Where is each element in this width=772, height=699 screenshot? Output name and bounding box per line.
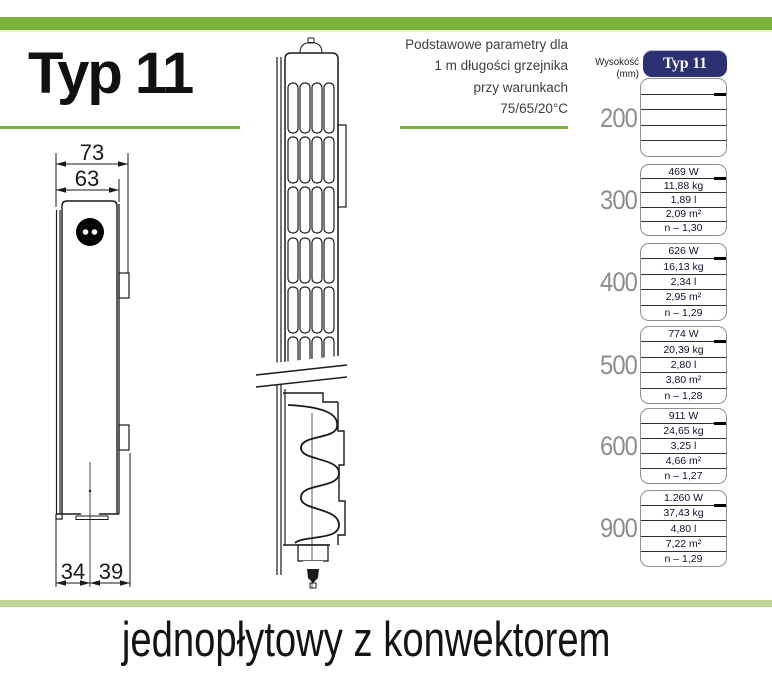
table-cell: 911 W <box>641 409 726 424</box>
table-block-900: 1.260 W 37,43 kg 4,80 l 7,22 m² n – 1,29 <box>640 490 727 567</box>
table-cell <box>641 126 726 142</box>
table-cell: 2,95 m² <box>641 290 726 305</box>
table-cell: 2,09 m² <box>641 208 726 222</box>
table-cell <box>641 95 726 111</box>
table-cell: n – 1,30 <box>641 222 726 235</box>
table-cell: n – 1,27 <box>641 469 726 483</box>
height-label-400: 400 <box>574 266 637 298</box>
table-height-header: Wysokość (mm) <box>578 56 639 80</box>
table-cell: n – 1,28 <box>641 389 726 403</box>
dim-top-outer: 73 <box>80 140 104 165</box>
table-cell: n – 1,29 <box>641 552 726 566</box>
footer-subtitle-text: jednopłytowy z konwektorem <box>122 612 611 668</box>
note-line-3: przy warunkach <box>368 77 568 98</box>
table-cell: 2,34 l <box>641 275 726 290</box>
table-cell: 1,89 l <box>641 193 726 207</box>
table-cell: 20,39 kg <box>641 342 726 357</box>
table-block-400: 626 W 16,13 kg 2,34 l 2,95 m² n – 1,29 <box>640 243 727 321</box>
height-label-500: 500 <box>574 349 637 381</box>
table-cell <box>641 79 726 95</box>
table-cell: 3,80 m² <box>641 373 726 388</box>
note-line-2: 1 m długości grzejnika <box>368 55 568 76</box>
table-block-500: 774 W 20,39 kg 2,80 l 3,80 m² n – 1,28 <box>640 326 727 404</box>
table-cell: 24,65 kg <box>641 424 726 439</box>
table-cell: 4,66 m² <box>641 454 726 469</box>
note-line-4: 75/65/20°C <box>368 98 568 119</box>
page-title: Typ 11 <box>28 40 192 107</box>
table-cell: 37,43 kg <box>641 506 726 521</box>
table-cell: 626 W <box>641 244 726 259</box>
table-cell <box>641 141 726 156</box>
table-cell: 469 W <box>641 165 726 179</box>
table-cell: 4,80 l <box>641 521 726 536</box>
footer-subtitle: jednopłytowy z konwektorem <box>0 612 772 668</box>
table-cell: 2,80 l <box>641 358 726 373</box>
table-cell: 11,88 kg <box>641 179 726 193</box>
note-underline <box>400 126 568 129</box>
radiator-spec-sheet: Typ 11 Podstawowe parametry dla 1 m dług… <box>0 0 772 699</box>
height-label-600: 600 <box>574 430 637 462</box>
table-cell: 774 W <box>641 327 726 342</box>
note-line-1: Podstawowe parametry dla <box>368 34 568 55</box>
table-cell: 7,22 m² <box>641 537 726 552</box>
table-cell <box>641 110 726 126</box>
table-cell: 16,13 kg <box>641 259 726 274</box>
profile-drawing: 73 63 <box>35 140 165 600</box>
dim-bottom-left: 34 <box>61 559 85 584</box>
dim-top-inner: 63 <box>75 166 99 191</box>
parameters-note: Podstawowe parametry dla 1 m długości gr… <box>368 34 568 119</box>
table-block-300: 469 W 11,88 kg 1,89 l 2,09 m² n – 1,30 <box>640 164 727 236</box>
top-accent-bar <box>0 17 772 30</box>
table-cell: n – 1,29 <box>641 306 726 320</box>
dim-bottom-right: 39 <box>99 559 123 584</box>
title-underline <box>0 126 240 129</box>
table-block-600: 911 W 24,65 kg 3,25 l 4,66 m² n – 1,27 <box>640 408 727 484</box>
height-label-900: 900 <box>574 512 637 544</box>
height-label-200: 200 <box>574 102 637 134</box>
top-accent-bar-shadow <box>0 30 772 32</box>
table-type-header: Typ 11 <box>643 50 727 77</box>
table-cell: 3,25 l <box>641 439 726 454</box>
footer-accent-band <box>0 600 772 607</box>
front-view-drawing <box>255 33 370 600</box>
table-cell: 1.260 W <box>641 491 726 506</box>
table-block-200 <box>640 78 727 157</box>
height-label-300: 300 <box>574 184 637 216</box>
